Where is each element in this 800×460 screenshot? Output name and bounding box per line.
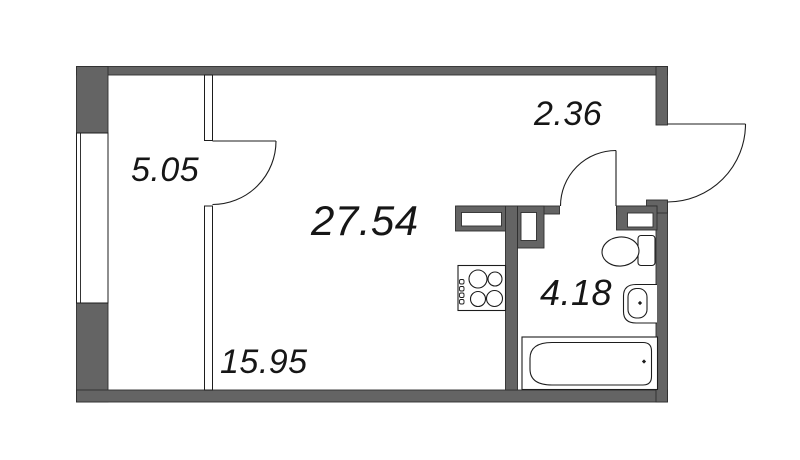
- sink: [624, 285, 658, 324]
- toilet: [601, 235, 655, 267]
- left-wall-upper: [77, 67, 109, 134]
- partition-lower: [205, 206, 213, 390]
- toilet-bowl: [601, 235, 640, 267]
- hallway-door-swing-arc: [213, 141, 277, 205]
- stove-burner: [469, 270, 487, 288]
- right-wall-upper: [656, 67, 668, 126]
- entrance-door: [668, 124, 746, 202]
- left-wall-lower: [77, 303, 109, 402]
- stove-knob: [460, 280, 465, 285]
- entry-hall-area-label: 2.36: [534, 97, 602, 131]
- window-frame: [77, 133, 109, 303]
- bathroom-area-label: 4.18: [540, 275, 612, 311]
- vent-shaft-bathroom: [521, 213, 537, 241]
- hallway-area-label: 5.05: [131, 153, 199, 187]
- hallway-door: [213, 141, 277, 205]
- main-room-area-label: 15.95: [220, 345, 308, 379]
- stove-knob: [460, 300, 465, 305]
- sink-basin: [628, 289, 647, 319]
- stove-knob: [460, 293, 465, 298]
- left-wall-window: [77, 133, 109, 303]
- stove-cooktop: [458, 266, 506, 311]
- stove-burner: [471, 292, 486, 307]
- entrance-door-swing-arc: [668, 124, 746, 202]
- bathtub: [522, 337, 658, 390]
- toilet-tank: [638, 236, 655, 266]
- bathtub-basin: [530, 343, 652, 386]
- partition-upper: [205, 75, 213, 141]
- stove-burner: [487, 291, 503, 307]
- vent-shaft-kitchen: [462, 213, 502, 227]
- stove-knob: [460, 287, 465, 292]
- entry-hall-door: [561, 151, 617, 207]
- bathroom-left-wall: [506, 206, 518, 390]
- total-area-label: 27.54: [311, 200, 419, 242]
- entry-hall-door-swing-arc: [561, 151, 617, 207]
- floor-plan: 27.54 5.05 2.36 15.95 4.18: [0, 0, 800, 460]
- top-wall: [77, 67, 668, 76]
- bottom-wall: [77, 390, 668, 402]
- stove-burner: [488, 272, 502, 286]
- vent-shaft-toilet: [628, 213, 654, 227]
